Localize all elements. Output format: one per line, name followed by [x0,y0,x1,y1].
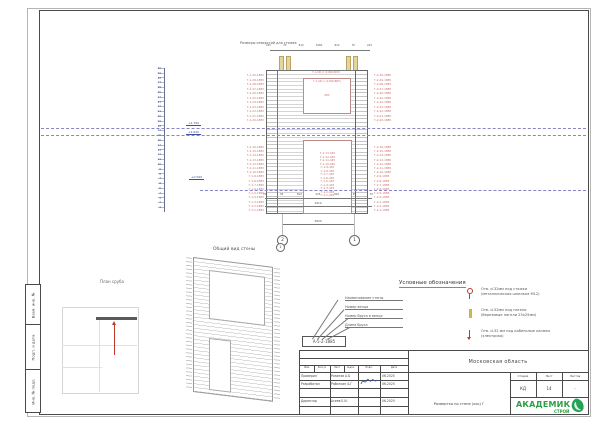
dimension-value: 245 [266,44,271,47]
drawing-sheet: Взам. инв. № Подп. и дата Инв. № подл. Р… [0,0,600,424]
legend-item-text: Отв. d-32мм под стяжки (металлическая шп… [481,287,587,296]
tb-date: 06.2025 [382,382,408,386]
document-title: Развертка по стене (ось) Г [408,372,510,414]
dimension-value: 810 [334,193,339,196]
stamp-podp-data: Подп. и дата [25,324,41,371]
tb-name: Розанов А.Б [331,374,358,378]
axono-wall [193,257,273,402]
stage-header: Стадия [510,372,536,380]
course-label: Г-2-1-1885 [374,208,400,212]
tb-col-header: №док. [344,366,358,369]
right-course-labels-upper: Г-2-30-1885Г-2-29-1885Г-2-28-1885Г-2-27-… [374,73,400,123]
callout-label: Наименование стены [345,296,403,302]
left-course-labels-upper: Г-1-30-1885Г-1-29-1885Г-1-28-1885Г-1-27-… [238,73,264,123]
dimension-value: 95 [353,193,356,196]
legend-line: (березовые нагели 25х25мм) [481,313,587,318]
window-label: Г-1-ОК-1 (1160х885) [304,80,350,83]
dimension-value: 70 [283,44,286,47]
dimension-value: 810 [299,44,304,47]
dimension-value: 225 [316,193,321,196]
overall-dimension: 2910 [263,201,373,205]
pin-stem [469,294,470,299]
axono-axis-bubble: 1 [276,243,285,252]
axis-bubble-right: 1 [349,235,360,246]
section-line [200,190,586,191]
tb-col-header: Изм. [300,366,314,369]
tie-hole-icon [467,288,473,299]
legend-title: Условные обозначения [399,280,466,288]
axono-right-marks [274,268,280,402]
callout-label: Номер бруса в венце [345,314,403,320]
left-course-labels-lower: Г-1-16-1885Г-1-15-1885Г-1-14-1885Г-1-13-… [238,145,264,212]
course-number-ruler: 3029282726252423222120191817161514131211… [149,66,161,210]
axes-dimension-line [282,224,354,225]
tb-col-header: Дата [380,366,408,369]
legend-line: (электрика) [481,334,587,339]
dimension-value: 70 [352,44,355,47]
sheet-number: 14 [536,380,562,397]
stamp-label: Взам. инв. № [31,292,36,318]
overall-dimension-line [265,206,372,207]
axono-window-opening [209,270,265,326]
dimension-value: 95 [280,193,283,196]
window-dim: 885 [304,94,350,97]
callout-label: Номер венца [345,305,403,311]
company-logo-subtext: СТРОЙ [554,409,569,414]
tb-col-header: Кол.уч [314,366,330,369]
tb-name: Работкин А.Г [331,382,358,386]
project-region: Московская область [408,351,588,372]
right-course-labels-lower: Г-2-16-1885Г-2-15-1885Г-2-14-1885Г-2-13-… [374,145,400,212]
axes-dimension: 2820 [282,219,354,223]
plan-inner-wall [62,367,102,368]
plan-title: План сруба [100,279,124,284]
sheets-total: - [562,380,588,397]
elevation-mark: +2,790 [186,121,201,126]
top-dimension-line [270,50,370,51]
cable-hole-icon [467,330,471,340]
cable-arrowhead [467,337,471,340]
dimension-value: 245 [367,44,372,47]
tb-date: 06.2025 [382,374,408,378]
stamp-label: Подп. и дата [31,335,36,361]
cable-stem [469,330,470,337]
elevation-mark: +0,590 [189,175,204,180]
tb-col-header: Лист [330,366,344,369]
tb-role: Проверил [301,374,330,378]
bottom-dimension-line [265,198,372,199]
callout-label: Длина бруса [345,323,403,329]
tb-date: 06.2025 [382,399,408,403]
window-opening: Г-1-ОК-1 (1160х885) 885 [303,78,351,114]
dowel-hole-icon [469,309,472,318]
sheet-header: Лист [536,372,562,380]
tb-name: Асеев Е.И. [331,399,358,403]
dimension-value: 810 [297,193,302,196]
legend-line: (металлическая шпилька М12) [481,292,587,297]
course-label: Г-1-20-1885 [238,118,264,123]
dimension-value: 1060 [316,44,323,47]
axono-title: Общий вид стены [213,247,255,252]
plan-inner-wall [99,318,100,392]
stamp-inv-podl: Инв. № подл. [25,369,41,413]
tb-role: Директор [301,399,330,403]
view-direction-arrow-line [114,325,115,355]
signature [360,376,378,387]
bottom-dimension-values: 70958102258109570 [263,193,373,196]
dimension-value: 810 [334,44,339,47]
course-label: Г-1-1-1885 [238,208,264,212]
top-dimension-values: 24570810106081070245 [266,44,372,47]
plan-highlighted-wall [96,317,137,320]
dimension-value: 70 [263,193,266,196]
section-line [41,128,586,129]
course-number: 1 [149,205,161,210]
stamp-label: Инв. № подл. [31,378,36,404]
ruler-line [164,68,165,212]
axono-door-opening [209,338,231,393]
section-line [41,135,586,136]
company-logo-icon [570,398,585,413]
axono-left-marks [186,257,192,391]
tb-role: Разработал [301,382,330,386]
title-block: Изм. Кол.уч Лист №док. Подп. Дата Провер… [299,350,589,415]
tb-col-header: Подп. [358,366,380,369]
window-top-label: Г-1-ОК-2 (1160х600) [303,71,349,74]
axis-guide [354,214,355,235]
plan-outline [62,307,139,394]
stamp-vzam-inv: Взам. инв. № [25,284,41,326]
course-label: Г-2-20-1885 [374,118,400,123]
sheets-header: Листов [562,372,588,380]
legend-item-text: Отв. d-32 мм под кабельные каналы (элект… [481,329,587,338]
stage-value: КД [510,380,536,397]
plan-inner-wall [62,345,137,346]
axis-guide [282,214,283,235]
legend-item-text: Отв. d-32мм под нагели (березовые нагели… [481,308,587,317]
dimension-value: 70 [370,193,373,196]
